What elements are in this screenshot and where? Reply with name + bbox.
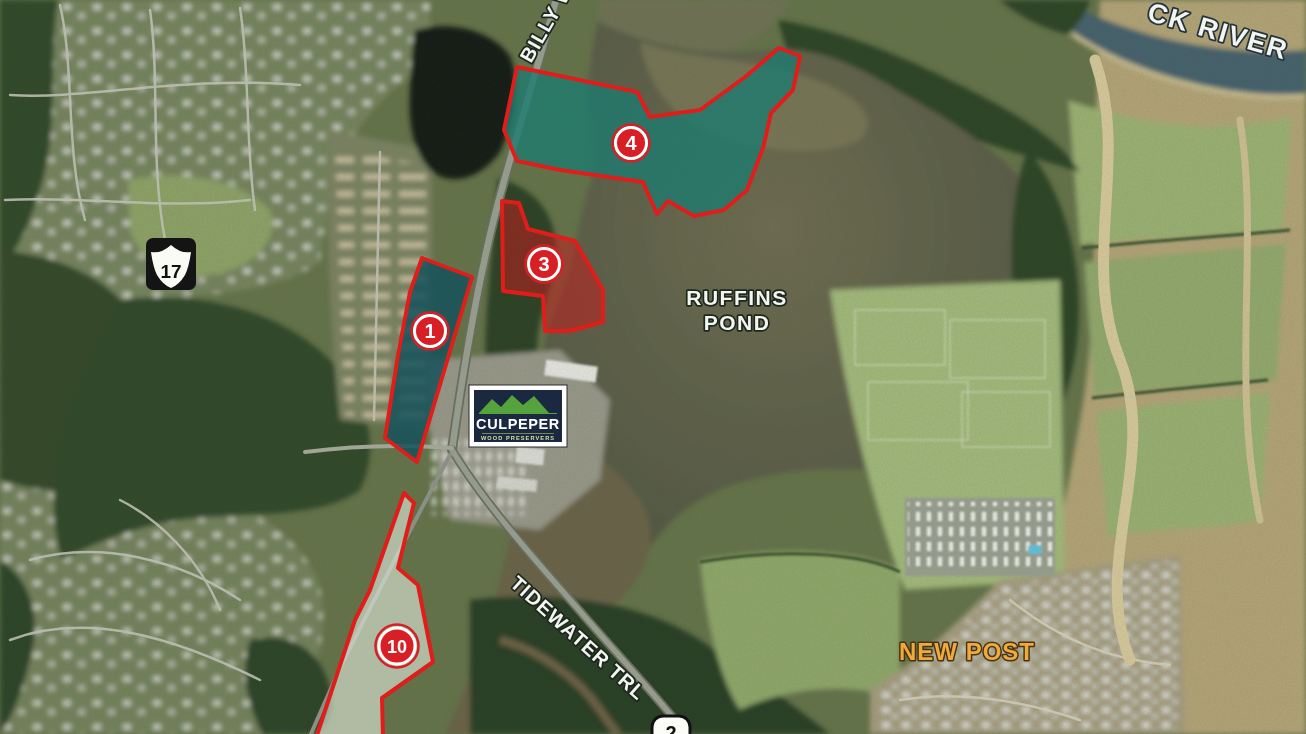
satellite-map: RUFFINS POND CK RIVER BILLY W TIDEWATER … [0,0,1306,734]
new-post-label: NEW POST [899,638,1035,665]
marker-number: 1 [424,320,435,342]
noise-overlay [0,0,1306,734]
marker-number: 10 [387,637,407,657]
va-2-number: 2 [665,722,676,734]
logo-subtitle: WOOD PRESERVERS [481,435,555,441]
marker-10[interactable]: 10 [376,625,419,668]
marker-3[interactable]: 3 [526,246,563,283]
marker-number: 4 [625,132,637,154]
marker-1[interactable]: 1 [412,313,449,350]
pond-label-line1: RUFFINS [686,286,788,309]
us-17-number: 17 [160,261,181,282]
pond-label-line2: POND [704,311,771,334]
marker-4[interactable]: 4 [613,125,650,162]
marker-number: 3 [538,253,549,275]
map-viewport: RUFFINS POND CK RIVER BILLY W TIDEWATER … [0,0,1306,734]
logo-title: CULPEPER [476,416,560,432]
culpeper-logo: CULPEPER WOOD PRESERVERS [469,385,567,447]
va-2-shield: 2 [652,716,690,734]
us-17-shield: 17 [146,238,196,290]
